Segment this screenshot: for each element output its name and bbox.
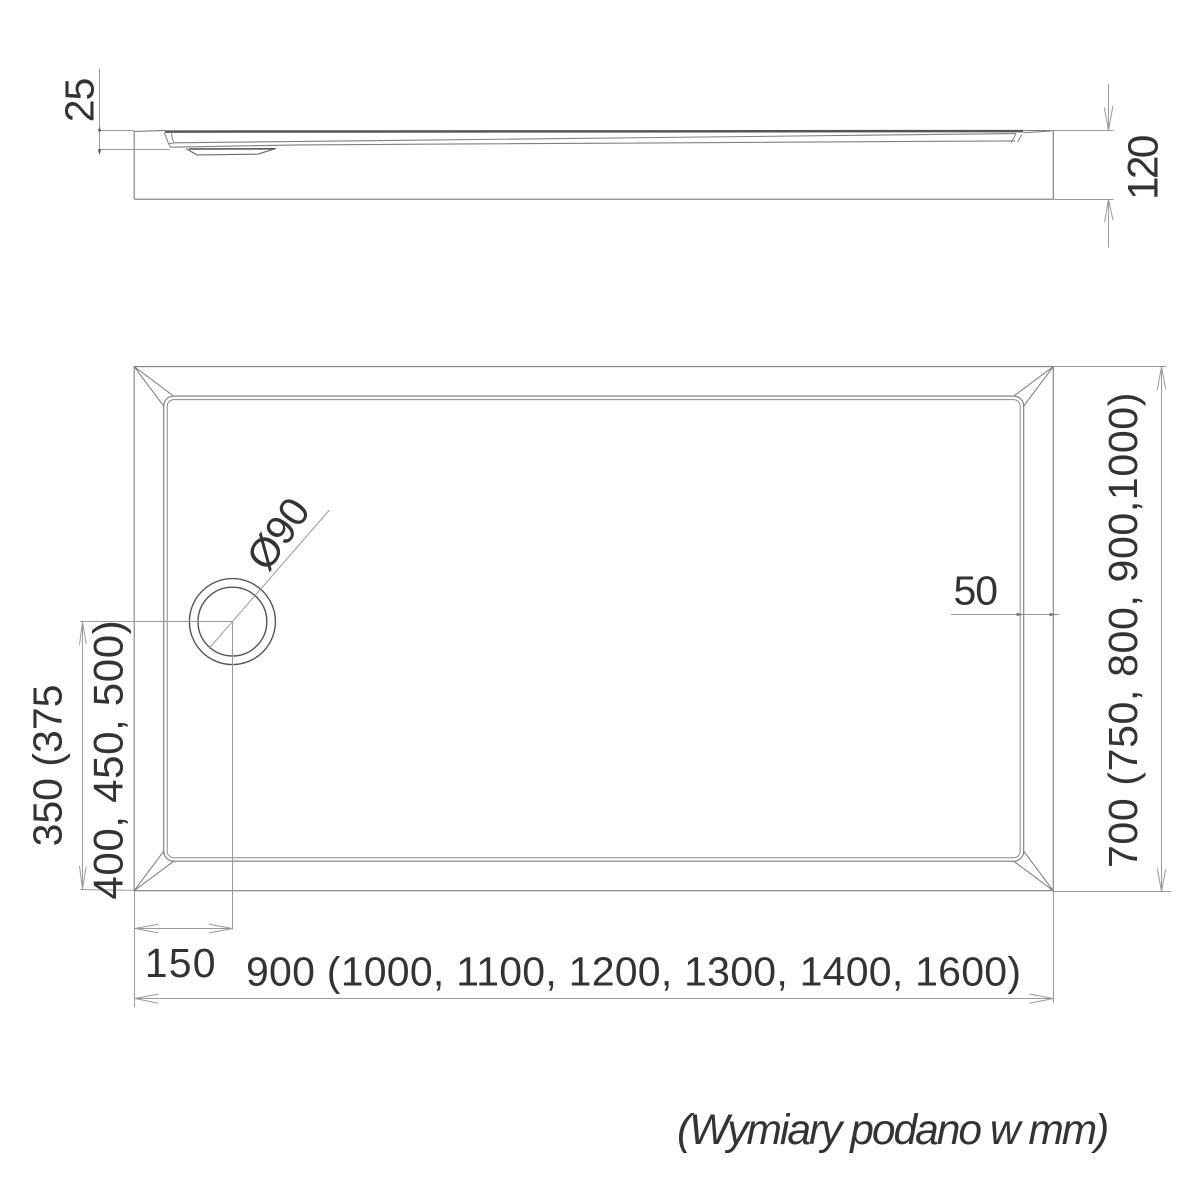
svg-text:700 (750, 800, 900,1000): 700 (750, 800, 900,1000) — [1100, 392, 1146, 868]
svg-text:Ø90: Ø90 — [237, 490, 318, 579]
svg-text:(Wymiary podano w mm): (Wymiary podano w mm) — [677, 1107, 1107, 1154]
svg-text:25: 25 — [56, 79, 102, 123]
svg-text:150: 150 — [145, 940, 217, 986]
svg-text:120: 120 — [1121, 136, 1168, 200]
svg-text:350 (375: 350 (375 — [25, 685, 71, 847]
svg-text:900 (1000, 1100, 1200, 1300, 1: 900 (1000, 1100, 1200, 1300, 1400, 1600) — [246, 949, 1021, 995]
svg-text:400, 450, 500): 400, 450, 500) — [85, 620, 132, 900]
svg-text:50: 50 — [953, 567, 997, 613]
